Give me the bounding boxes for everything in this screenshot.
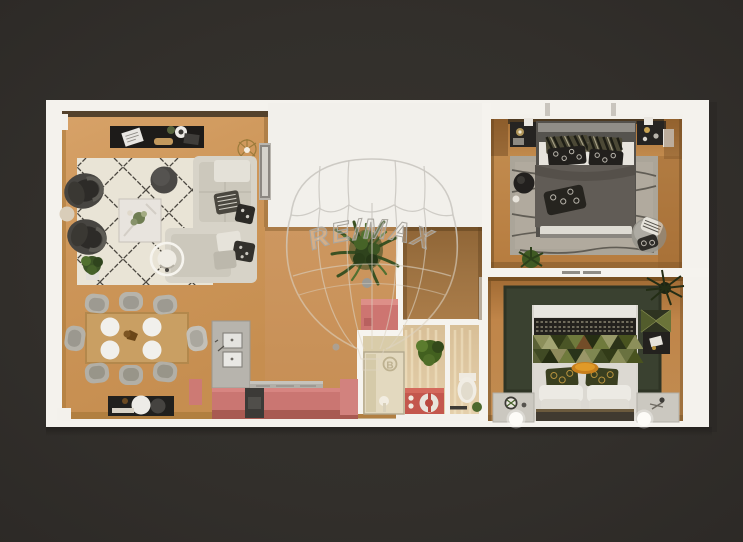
svg-text:B: B bbox=[386, 361, 393, 372]
